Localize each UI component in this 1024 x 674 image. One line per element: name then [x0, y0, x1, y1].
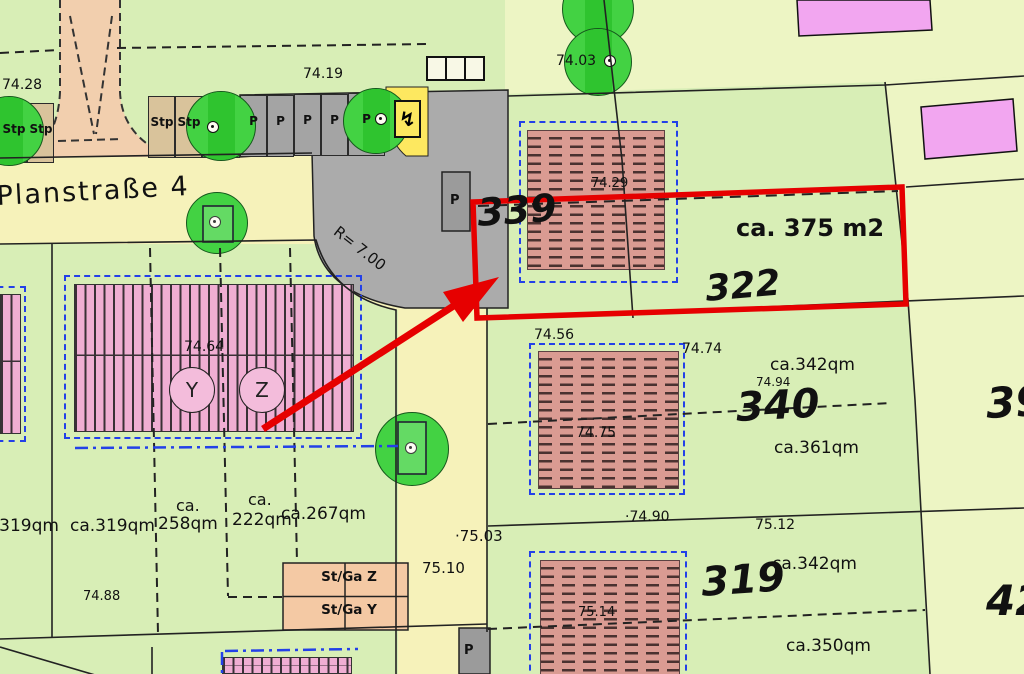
- site-plan-map: ↯ 74.2874.19Planstraße 474.03339ca. 375 …: [0, 0, 1024, 674]
- lines-layer: [0, 0, 1024, 674]
- tree-pits: [203, 206, 426, 474]
- boundary-lines: [0, 0, 1024, 674]
- highlight-group: [263, 187, 906, 429]
- highlight-rect: [473, 187, 906, 318]
- blue-dashdot-lines: [75, 446, 398, 674]
- parcel-dashed-lines: [0, 44, 925, 634]
